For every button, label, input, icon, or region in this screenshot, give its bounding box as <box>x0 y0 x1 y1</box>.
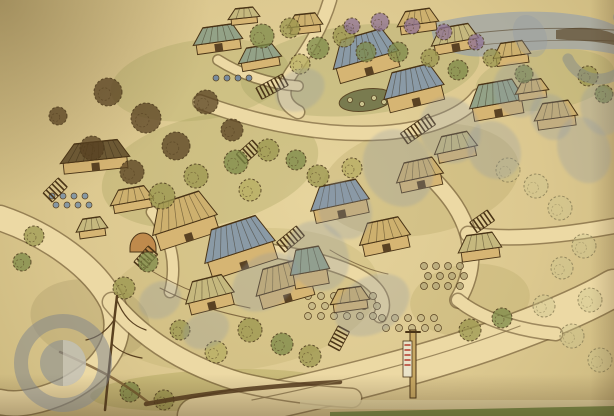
pond-stone <box>348 98 353 103</box>
tree <box>560 324 584 348</box>
storage-jar <box>318 293 325 300</box>
storage-jar <box>305 313 312 320</box>
tree <box>483 49 501 67</box>
storage-jar <box>425 273 432 280</box>
building-door <box>451 43 460 52</box>
tree <box>548 196 572 220</box>
storage-jar <box>246 75 252 81</box>
building-door <box>382 243 391 252</box>
storage-jar <box>433 283 440 290</box>
tree <box>238 318 262 342</box>
storage-jar <box>75 202 81 208</box>
tree <box>13 253 31 271</box>
storage-jar <box>457 263 464 270</box>
storage-jar <box>437 273 444 280</box>
tree <box>250 24 274 48</box>
storage-jar <box>445 263 452 270</box>
banner-flag <box>403 341 412 377</box>
storage-jar <box>318 313 325 320</box>
storage-jar <box>457 283 464 290</box>
pond-stone <box>382 100 387 105</box>
photo-vignette-right <box>590 0 614 416</box>
storage-jar <box>53 202 59 208</box>
scanned-illustration-photo <box>0 0 614 416</box>
photo-vignette-topleft <box>0 0 240 200</box>
storage-jar <box>422 325 429 332</box>
storage-jar <box>86 202 92 208</box>
tree <box>371 13 389 31</box>
storage-jar <box>396 325 403 332</box>
storage-jar <box>435 325 442 332</box>
storage-jar <box>421 263 428 270</box>
drawing-canvas <box>0 0 614 416</box>
tree <box>421 49 439 67</box>
storage-jar <box>405 315 412 322</box>
pond-stone <box>372 96 377 101</box>
storage-jar <box>461 273 468 280</box>
storage-jar <box>418 315 425 322</box>
pond-stone <box>360 102 365 107</box>
tree <box>524 174 548 198</box>
storage-jar <box>309 303 316 310</box>
storage-jar <box>64 202 70 208</box>
storage-jar <box>433 263 440 270</box>
storage-jar <box>445 283 452 290</box>
storage-jar <box>431 315 438 322</box>
storage-jar <box>449 273 456 280</box>
storage-jar <box>322 303 329 310</box>
building-door <box>494 108 503 117</box>
storage-jar <box>421 283 428 290</box>
